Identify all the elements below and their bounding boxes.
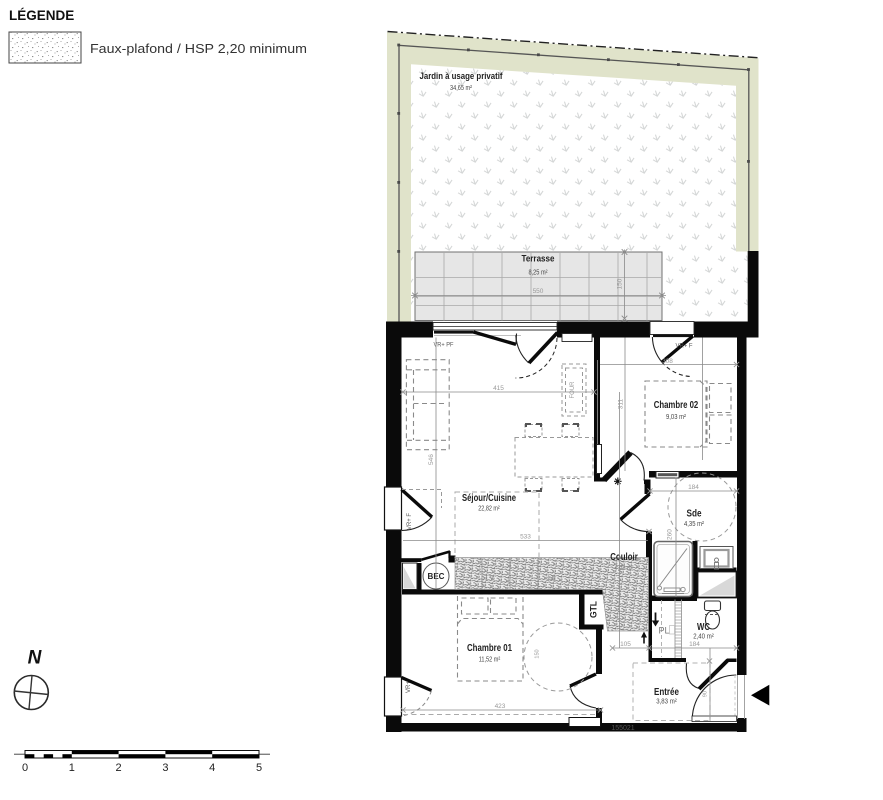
svg-text:311: 311 xyxy=(618,398,625,409)
svg-text:184: 184 xyxy=(688,484,699,491)
svg-text:155021: 155021 xyxy=(611,725,634,732)
svg-text:VR+ F: VR+ F xyxy=(676,343,693,350)
svg-text:VR+ PF: VR+ PF xyxy=(434,342,454,349)
svg-text:4: 4 xyxy=(209,762,215,774)
svg-text:3: 3 xyxy=(162,762,168,774)
svg-text:Séjour/Cuisine: Séjour/Cuisine xyxy=(462,492,516,504)
svg-text:5: 5 xyxy=(256,762,262,774)
svg-text:4,08 m²: 4,08 m² xyxy=(615,563,634,572)
svg-text:ML: ML xyxy=(548,574,558,583)
svg-text:Couloir: Couloir xyxy=(610,552,638,563)
svg-text:LÉGENDE: LÉGENDE xyxy=(9,8,74,23)
svg-text:546: 546 xyxy=(428,454,435,465)
svg-text:11,52 m²: 11,52 m² xyxy=(479,655,501,664)
svg-text:VR+: VR+ xyxy=(405,681,412,693)
svg-text:0: 0 xyxy=(22,762,28,774)
svg-text:Jardin à usage privatif: Jardin à usage privatif xyxy=(420,71,504,82)
svg-text:150: 150 xyxy=(617,278,624,289)
svg-text:22,82 m²: 22,82 m² xyxy=(478,504,500,513)
svg-text:105: 105 xyxy=(620,641,631,648)
svg-text:150: 150 xyxy=(535,649,541,658)
svg-text:2: 2 xyxy=(116,762,122,774)
svg-text:3,83 m²: 3,83 m² xyxy=(656,697,677,706)
svg-text:2,40 m²: 2,40 m² xyxy=(693,632,714,641)
svg-text:184: 184 xyxy=(689,641,700,648)
svg-text:550: 550 xyxy=(533,288,544,295)
svg-text:Sde: Sde xyxy=(687,508,702,520)
svg-text:1: 1 xyxy=(69,762,75,774)
svg-text:260: 260 xyxy=(667,529,674,540)
svg-text:GTL: GTL xyxy=(589,601,600,618)
svg-text:LV: LV xyxy=(486,573,495,582)
svg-text:Terrasse: Terrasse xyxy=(522,254,555,265)
svg-text:423: 423 xyxy=(495,703,506,710)
svg-text:Chambre 02: Chambre 02 xyxy=(654,399,699,411)
svg-text:8,25 m²: 8,25 m² xyxy=(529,268,548,277)
svg-text:Chambre 01: Chambre 01 xyxy=(467,642,512,654)
svg-text:4,35 m²: 4,35 m² xyxy=(684,519,704,528)
svg-text:PL: PL xyxy=(658,626,669,636)
svg-text:533: 533 xyxy=(520,534,531,541)
svg-text:308: 308 xyxy=(662,358,673,365)
svg-text:90: 90 xyxy=(703,691,709,697)
svg-text:N: N xyxy=(28,648,43,669)
svg-text:34,65 m²: 34,65 m² xyxy=(450,83,472,92)
svg-text:415: 415 xyxy=(493,385,504,392)
svg-text:9,03 m²: 9,03 m² xyxy=(666,412,686,421)
svg-text:VR+ F: VR+ F xyxy=(406,513,413,530)
svg-text:Faux-plafond / HSP 2,20 minimu: Faux-plafond / HSP 2,20 minimum xyxy=(90,41,307,56)
svg-text:FOUR: FOUR xyxy=(570,381,576,399)
